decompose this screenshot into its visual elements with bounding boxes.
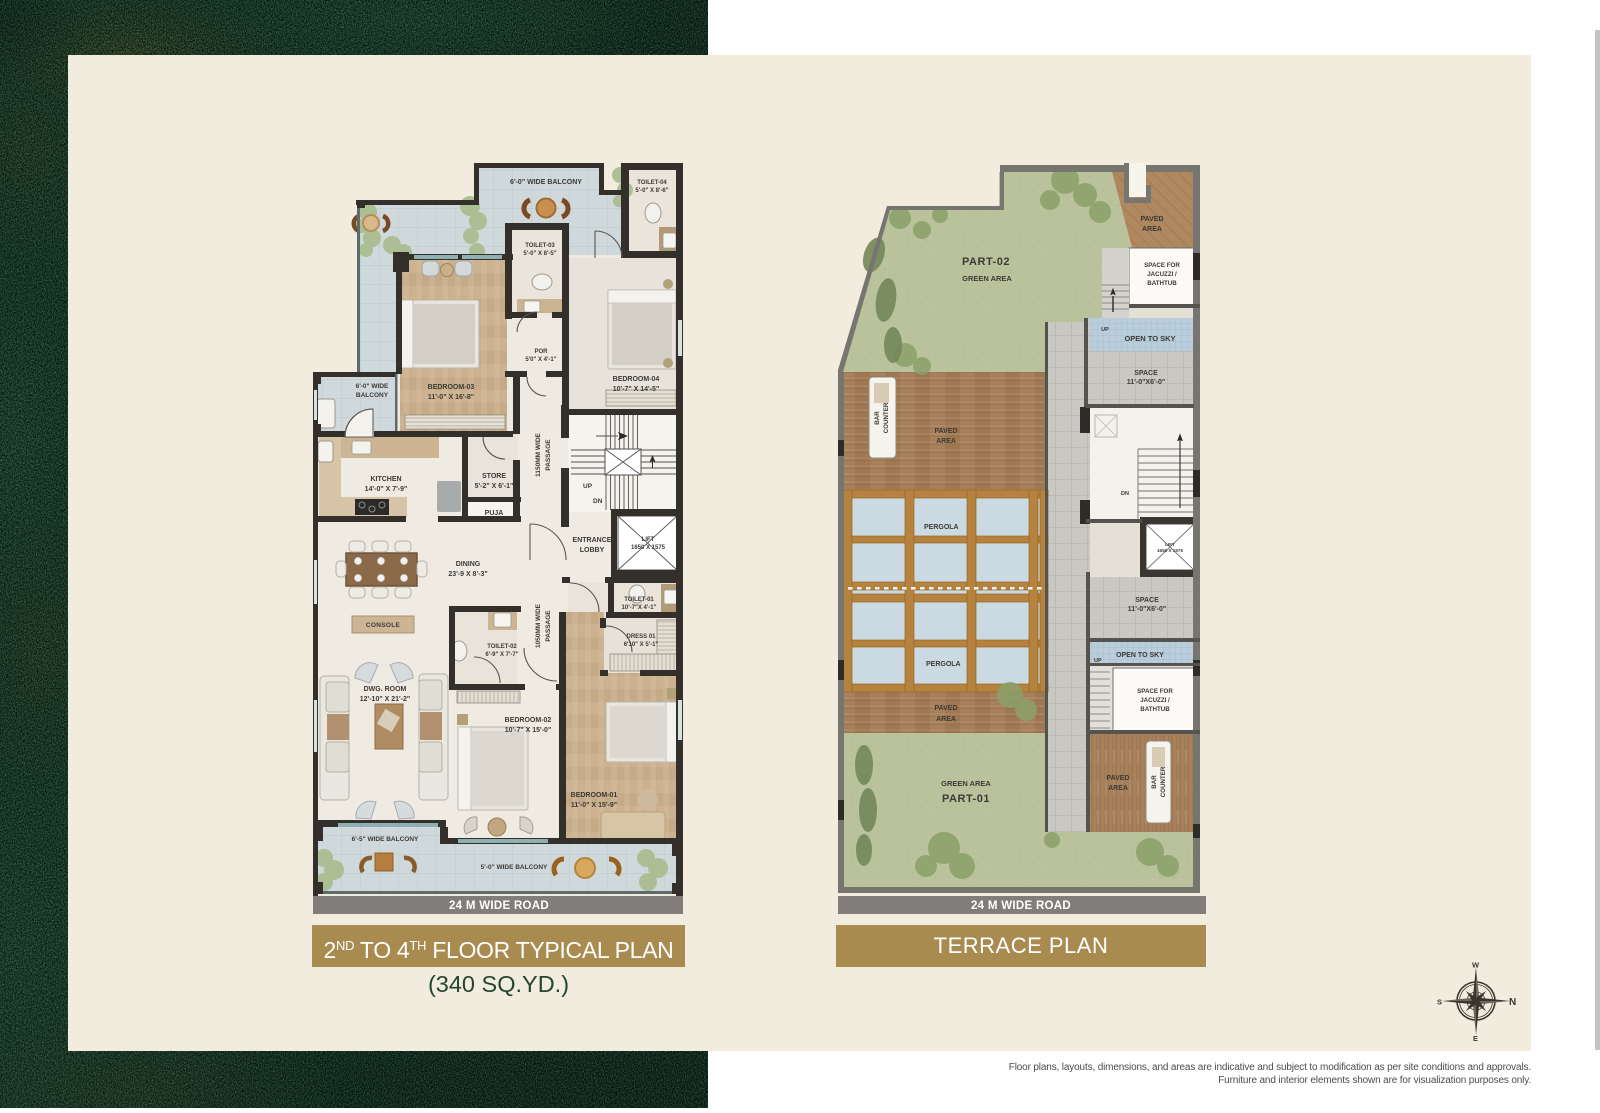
svg-text:PAVED: PAVED — [934, 705, 957, 712]
svg-text:6'-9" X 7'-7": 6'-9" X 7'-7" — [485, 652, 518, 658]
svg-text:5'0" X 4'-1": 5'0" X 4'-1" — [525, 357, 556, 363]
svg-text:5'-0" WIDE BALCONY: 5'-0" WIDE BALCONY — [481, 864, 548, 871]
svg-text:PASSAGE: PASSAGE — [545, 610, 552, 642]
svg-text:PAVED: PAVED — [934, 428, 957, 435]
svg-text:OPEN TO SKY: OPEN TO SKY — [1124, 334, 1175, 343]
svg-text:DN: DN — [593, 498, 603, 505]
svg-text:AREA: AREA — [1108, 785, 1128, 792]
svg-text:W: W — [1472, 961, 1480, 970]
svg-text:POR: POR — [534, 349, 548, 355]
svg-text:N: N — [1509, 997, 1516, 1008]
svg-text:BEDROOM-04: BEDROOM-04 — [613, 376, 660, 383]
svg-text:STORE: STORE — [482, 473, 506, 480]
svg-text:AREA: AREA — [936, 716, 956, 723]
svg-text:KITCHEN: KITCHEN — [370, 476, 401, 483]
svg-text:1650 X 1575: 1650 X 1575 — [1157, 548, 1184, 553]
svg-text:BATHTUB: BATHTUB — [1147, 280, 1177, 287]
svg-text:DINING: DINING — [456, 561, 481, 568]
svg-text:PERGOLA: PERGOLA — [924, 524, 959, 531]
svg-text:CONSOLE: CONSOLE — [366, 622, 401, 629]
svg-text:1050MM WIDE: 1050MM WIDE — [535, 603, 542, 648]
svg-text:UP: UP — [583, 483, 593, 490]
svg-text:24 M WIDE ROAD: 24 M WIDE ROAD — [449, 900, 549, 912]
svg-text:E: E — [1473, 1034, 1478, 1042]
svg-text:SPACE: SPACE — [1135, 597, 1159, 604]
svg-text:COUNTER: COUNTER — [1160, 766, 1167, 797]
svg-text:UP: UP — [1101, 327, 1109, 333]
svg-text:TOILET-03: TOILET-03 — [525, 243, 555, 249]
svg-text:PART-01: PART-01 — [942, 793, 990, 805]
svg-text:SPACE FOR: SPACE FOR — [1137, 688, 1173, 695]
svg-text:11'-0" X 15'-9": 11'-0" X 15'-9" — [571, 802, 617, 809]
svg-text:BEDROOM-02: BEDROOM-02 — [505, 717, 552, 724]
svg-text:PUJA: PUJA — [485, 510, 504, 517]
svg-text:LIFT: LIFT — [642, 537, 655, 543]
svg-text:BEDROOM-03: BEDROOM-03 — [428, 384, 475, 391]
svg-text:23'-9 X 8'-3": 23'-9 X 8'-3" — [448, 571, 487, 578]
svg-text:GREEN AREA: GREEN AREA — [962, 274, 1012, 283]
svg-text:10'-7" X 14'-5": 10'-7" X 14'-5" — [613, 386, 660, 393]
svg-text:BAR: BAR — [1151, 775, 1158, 789]
svg-text:5'-2" X 6'-1": 5'-2" X 6'-1" — [475, 483, 514, 490]
svg-text:11'-0"X6'-0": 11'-0"X6'-0" — [1128, 606, 1166, 613]
svg-text:LOBBY: LOBBY — [580, 547, 605, 554]
svg-text:PAVED: PAVED — [1106, 775, 1129, 782]
svg-text:11'-0" X 16'-8": 11'-0" X 16'-8" — [428, 394, 474, 401]
svg-text:DN: DN — [1121, 491, 1129, 497]
svg-text:BALCONY: BALCONY — [356, 392, 389, 399]
svg-text:SPACE: SPACE — [1134, 370, 1158, 377]
svg-text:11'-0"X6'-0": 11'-0"X6'-0" — [1127, 379, 1165, 386]
svg-text:TOILET-02: TOILET-02 — [487, 644, 517, 650]
svg-text:PERGOLA: PERGOLA — [926, 661, 961, 668]
svg-text:5'-0" X 8'-5": 5'-0" X 8'-5" — [523, 251, 556, 257]
svg-text:DWG. ROOM: DWG. ROOM — [364, 686, 407, 693]
svg-text:PAVED: PAVED — [1140, 216, 1163, 223]
svg-text:24 M WIDE ROAD: 24 M WIDE ROAD — [971, 900, 1071, 912]
svg-text:6'-0" WIDE BALCONY: 6'-0" WIDE BALCONY — [510, 179, 582, 186]
svg-text:JACUZZI /: JACUZZI / — [1140, 697, 1170, 704]
svg-text:6'-5" WIDE BALCONY: 6'-5" WIDE BALCONY — [352, 836, 419, 843]
svg-text:PASSAGE: PASSAGE — [545, 439, 552, 471]
svg-text:BEDROOM-01: BEDROOM-01 — [571, 792, 618, 799]
svg-text:AREA: AREA — [936, 438, 956, 445]
svg-text:TOILET-01: TOILET-01 — [624, 597, 654, 603]
svg-text:1650 X 1575: 1650 X 1575 — [631, 545, 666, 551]
svg-text:14'-0" X 7'-9": 14'-0" X 7'-9" — [365, 486, 408, 493]
svg-text:12'-10" X 21'-2": 12'-10" X 21'-2" — [360, 696, 410, 703]
svg-text:PART-02: PART-02 — [962, 256, 1010, 268]
svg-text:SPACE FOR: SPACE FOR — [1144, 262, 1180, 269]
svg-text:TOILET-04: TOILET-04 — [637, 180, 667, 186]
svg-text:6'10" X 5'-1": 6'10" X 5'-1" — [624, 642, 659, 648]
svg-text:1150MM WIDE: 1150MM WIDE — [535, 432, 542, 476]
svg-text:OPEN TO SKY: OPEN TO SKY — [1116, 652, 1164, 659]
svg-text:LIFT: LIFT — [1165, 542, 1175, 547]
svg-text:S: S — [1437, 998, 1442, 1007]
svg-text:AREA: AREA — [1142, 226, 1162, 233]
svg-text:ENTRANCE: ENTRANCE — [573, 537, 612, 544]
svg-text:5'-0" X 8'-6": 5'-0" X 8'-6" — [635, 188, 668, 194]
svg-text:10'-7"X 4'-1": 10'-7"X 4'-1" — [622, 605, 657, 611]
svg-text:JACUZZI /: JACUZZI / — [1147, 271, 1177, 278]
svg-text:DRESS 01: DRESS 01 — [626, 634, 656, 640]
svg-text:BATHTUB: BATHTUB — [1140, 706, 1170, 713]
svg-text:BAR: BAR — [874, 411, 881, 425]
svg-text:GREEN AREA: GREEN AREA — [941, 779, 991, 788]
svg-text:COUNTER: COUNTER — [883, 402, 890, 433]
svg-text:6'-0" WIDE: 6'-0" WIDE — [356, 383, 389, 390]
svg-text:10'-7" X 15'-0": 10'-7" X 15'-0" — [505, 727, 552, 734]
